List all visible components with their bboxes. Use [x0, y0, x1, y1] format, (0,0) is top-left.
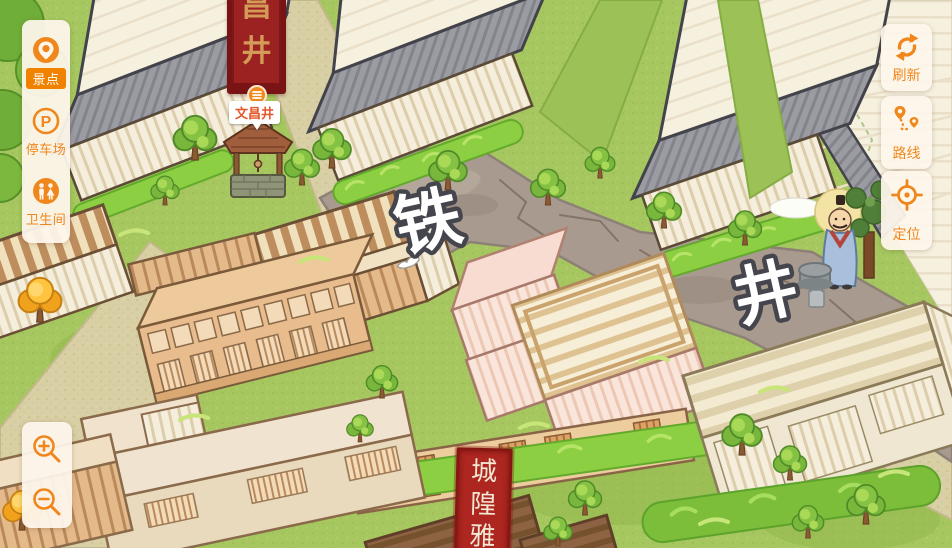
sidebar-item-label: 卫生间	[26, 209, 67, 228]
zoom-in-button[interactable]	[29, 431, 65, 467]
toilet-icon	[31, 176, 61, 206]
parking-icon: P	[31, 106, 61, 136]
scenic-map-app: 文昌井 文昌井 铁 井 城隍雅 景点 P 停车场	[0, 0, 952, 548]
refresh-icon	[891, 31, 923, 63]
locate-icon	[890, 178, 924, 212]
vertical-red-sign-text: 城隍雅	[466, 451, 500, 548]
vertical-red-sign: 城隍雅	[453, 447, 512, 548]
sidebar-item-toilet[interactable]: 卫生间	[26, 176, 67, 228]
poi-label-pointer	[251, 121, 263, 130]
sidebar-item-scenic-spots[interactable]: 景点	[26, 35, 65, 89]
tool-button-label: 刷新	[893, 65, 921, 85]
tool-button-label: 定位	[893, 224, 921, 244]
route-icon	[890, 103, 924, 137]
hanging-banner-text: 文昌井	[238, 0, 276, 74]
refresh-button[interactable]: 刷新	[881, 24, 932, 91]
well-glyph	[250, 88, 264, 102]
scenic-spot-icon	[31, 35, 61, 65]
zoom-panel	[22, 422, 72, 528]
svg-text:P: P	[41, 114, 52, 131]
locate-button[interactable]: 定位	[881, 171, 932, 250]
sidebar-panel: 景点 P 停车场 卫生间	[22, 20, 70, 243]
zoom-in-icon	[30, 432, 64, 466]
route-button[interactable]: 路线	[881, 96, 932, 169]
zoom-out-button[interactable]	[29, 484, 65, 520]
hanging-banner: 文昌井	[227, 0, 286, 94]
zoom-out-icon	[30, 485, 64, 519]
sidebar-item-label: 停车场	[26, 139, 67, 158]
tool-button-label: 路线	[893, 143, 921, 163]
sidebar-item-label: 景点	[26, 68, 65, 89]
sidebar-item-parking[interactable]: P 停车场	[26, 106, 67, 158]
